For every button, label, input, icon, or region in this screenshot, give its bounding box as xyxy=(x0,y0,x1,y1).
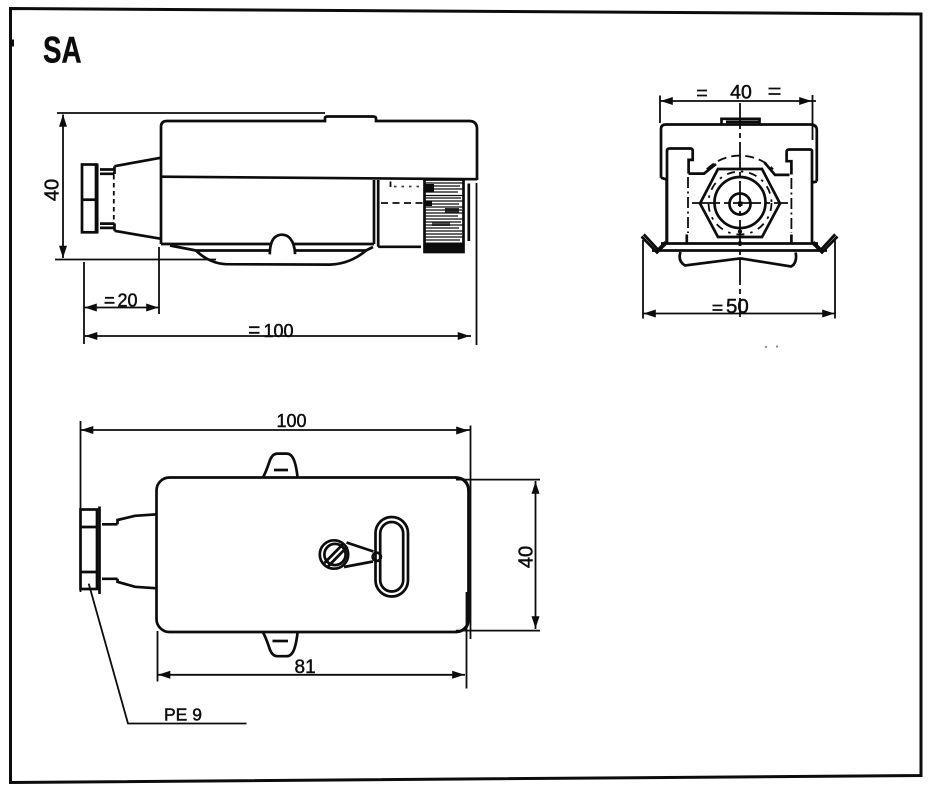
svg-text:81: 81 xyxy=(295,657,316,678)
svg-text:SA: SA xyxy=(43,30,82,71)
svg-text:50: 50 xyxy=(726,295,749,318)
svg-text:40: 40 xyxy=(42,179,64,201)
svg-text:100: 100 xyxy=(264,321,294,341)
svg-text:40: 40 xyxy=(730,82,752,104)
svg-text:100: 100 xyxy=(277,411,307,431)
svg-text:20: 20 xyxy=(118,291,138,311)
svg-text:PE 9: PE 9 xyxy=(164,705,202,725)
svg-text:40: 40 xyxy=(516,546,538,568)
